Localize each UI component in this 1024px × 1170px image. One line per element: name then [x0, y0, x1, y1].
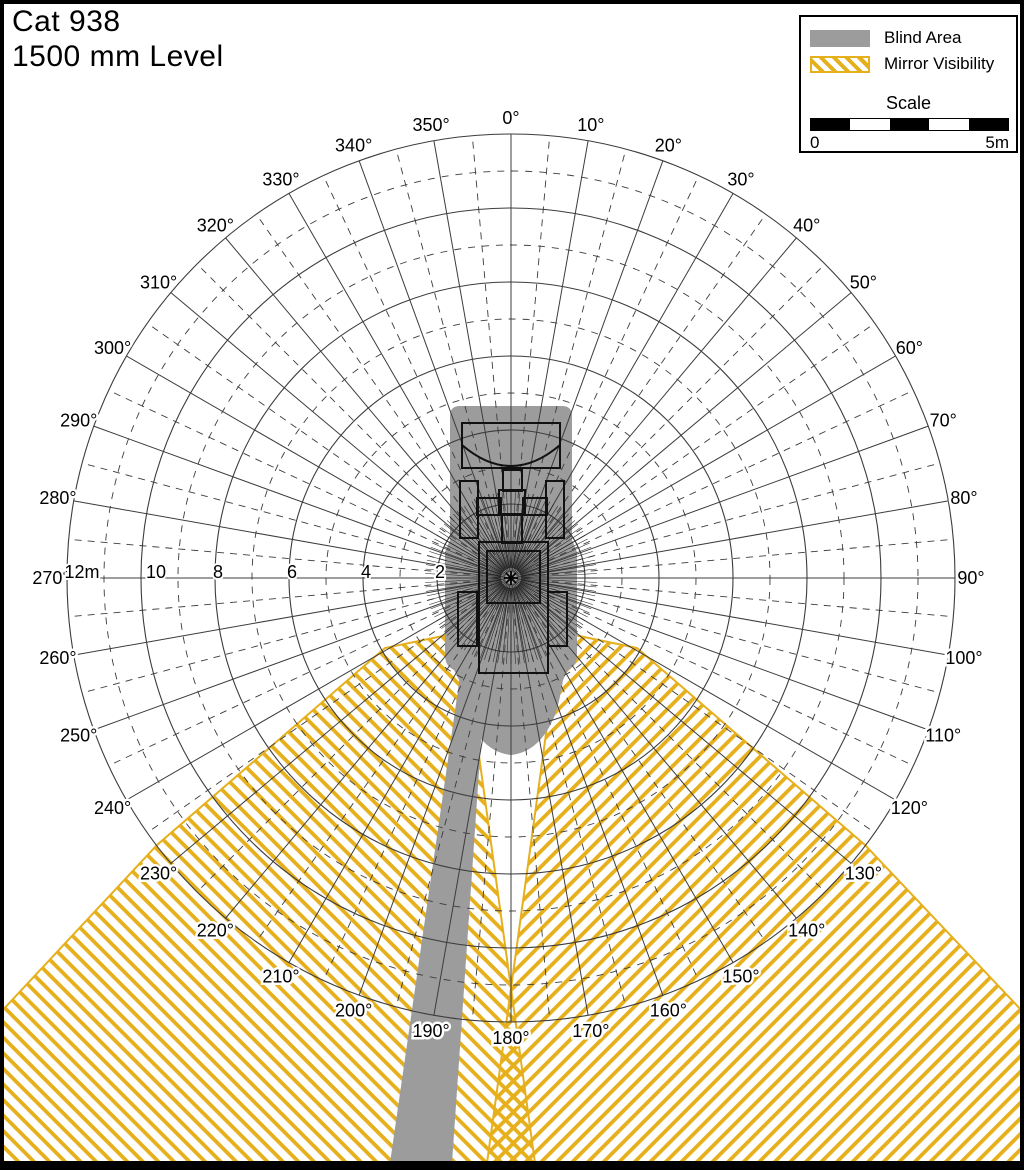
- scale-segment: [969, 119, 1008, 130]
- angle-label: 20°: [655, 136, 682, 156]
- angle-label: 130°: [845, 864, 882, 884]
- angle-label: 150°: [722, 966, 759, 986]
- angle-label: 260°: [39, 648, 76, 668]
- angle-label: 140°: [788, 920, 825, 940]
- radial-label: 2: [435, 562, 445, 582]
- angle-label: 90°: [957, 568, 984, 588]
- blind-area-label: Blind Area: [884, 28, 962, 48]
- scale-bar: [810, 118, 1009, 131]
- angle-label: 70°: [930, 411, 957, 431]
- scale-bar-ends: 0 5m: [810, 133, 1009, 153]
- scale-segment: [850, 119, 889, 130]
- angle-label: 320°: [197, 216, 234, 236]
- angle-label: 280°: [39, 488, 76, 508]
- angle-label: 230°: [140, 864, 177, 884]
- angle-label: 170°: [572, 1021, 609, 1041]
- radial-label: 4: [361, 562, 371, 582]
- operator-position-star: [504, 571, 518, 585]
- radial-label: 10: [146, 562, 166, 582]
- angle-label: 120°: [891, 798, 928, 818]
- legend: Blind Area Mirror Visibility Scale 0 5m: [799, 15, 1018, 153]
- angle-label: 240°: [94, 798, 131, 818]
- machine-model-title: Cat 938: [12, 4, 224, 39]
- angle-label: 80°: [950, 488, 977, 508]
- radial-label: 8: [213, 562, 223, 582]
- scale-segment: [811, 119, 850, 130]
- visibility-diagram-page: 0°10°20°30°40°50°60°70°80°90°100°110°120…: [0, 0, 1024, 1170]
- diagram-frame-bottom: [0, 1161, 1024, 1170]
- scale-start-label: 0: [810, 133, 819, 153]
- angle-label: 10°: [577, 115, 604, 135]
- visibility-diagram: 0°10°20°30°40°50°60°70°80°90°100°110°120…: [0, 0, 1024, 1170]
- scale-end-label: 5m: [985, 133, 1009, 153]
- angle-label: 210°: [262, 966, 299, 986]
- measurement-level-title: 1500 mm Level: [12, 39, 224, 74]
- page-title: Cat 938 1500 mm Level: [12, 4, 224, 75]
- scale-title: Scale: [801, 93, 1016, 114]
- angle-label: 160°: [650, 1000, 687, 1020]
- scale-segment: [929, 119, 968, 130]
- angle-label: 40°: [793, 216, 820, 236]
- radial-label: 6: [287, 562, 297, 582]
- angle-label: 300°: [94, 338, 131, 358]
- legend-item-blind-area: Blind Area: [810, 28, 962, 48]
- legend-item-mirror-visibility: Mirror Visibility: [810, 54, 994, 74]
- angle-label: 220°: [197, 920, 234, 940]
- angle-label: 290°: [60, 411, 97, 431]
- angle-label: 0°: [502, 108, 519, 128]
- radial-label: 12m: [64, 562, 99, 582]
- angle-label: 190°: [413, 1021, 450, 1041]
- angle-label: 100°: [945, 648, 982, 668]
- blind-area-swatch: [810, 30, 870, 47]
- angle-label: 340°: [335, 136, 372, 156]
- angle-label: 180°: [492, 1028, 529, 1048]
- angle-label: 330°: [262, 170, 299, 190]
- mirror-visibility-swatch: [810, 56, 870, 73]
- angle-label: 30°: [727, 170, 754, 190]
- angle-label: 200°: [335, 1000, 372, 1020]
- angle-label: 50°: [850, 272, 877, 292]
- angle-label: 60°: [896, 338, 923, 358]
- scale-segment: [890, 119, 929, 130]
- angle-label: 350°: [413, 115, 450, 135]
- mirror-visibility-label: Mirror Visibility: [884, 54, 994, 74]
- angle-label: 310°: [140, 272, 177, 292]
- angle-label: 250°: [60, 725, 97, 745]
- angle-label: 110°: [925, 725, 961, 745]
